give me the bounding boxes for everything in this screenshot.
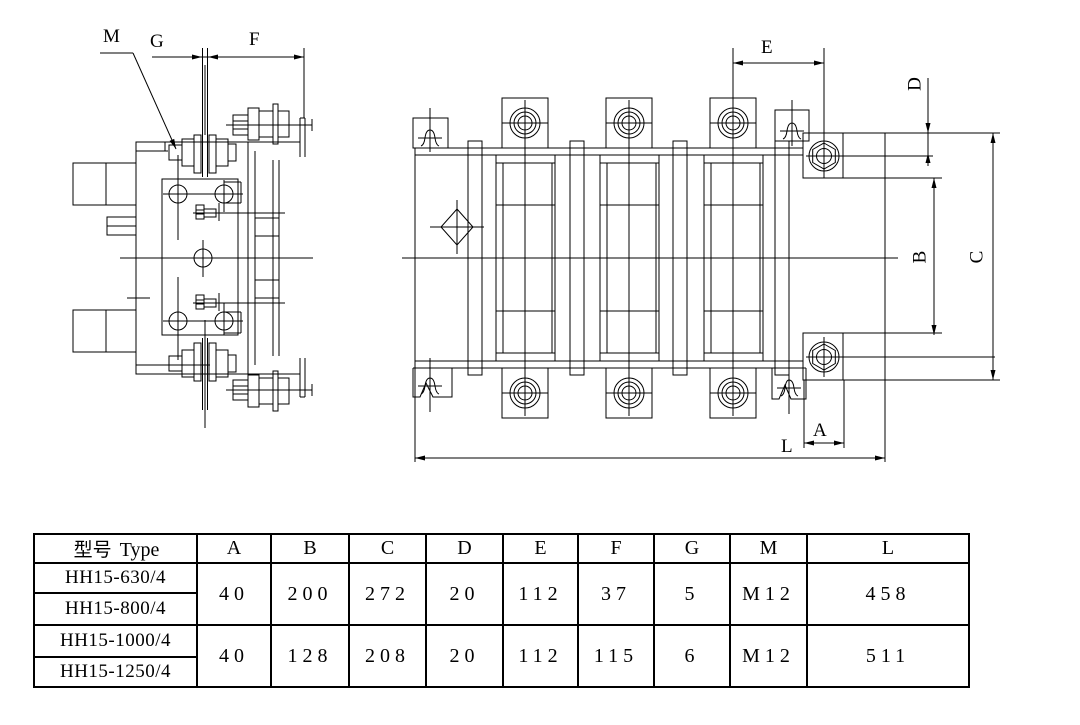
- value-cell: 112: [503, 563, 578, 625]
- value-cell: M12: [730, 625, 807, 687]
- top-terminal-block: [803, 48, 933, 178]
- upper-terminal-bolt-side: [226, 104, 312, 157]
- table-header-row: 型号Type A B C D E F G M L: [34, 534, 969, 563]
- value-cell: 272: [349, 563, 426, 625]
- dimension-l: [415, 368, 885, 462]
- leader-m: [100, 53, 176, 149]
- value-cell: 115: [578, 625, 654, 687]
- dim-label-g: G: [150, 32, 164, 51]
- value-cell: M12: [730, 563, 807, 625]
- value-cell: 5: [654, 563, 730, 625]
- dimension-g-f: [152, 48, 304, 118]
- table-row: HH15-630/4 40 200 272 20 112 37 5 M12 45…: [34, 563, 969, 593]
- col-header-f: F: [578, 534, 654, 563]
- col-header-a: A: [197, 534, 271, 563]
- value-cell: 200: [271, 563, 349, 625]
- type-header: 型号Type: [34, 534, 197, 563]
- pole-3: [704, 48, 763, 418]
- value-cell: 511: [807, 625, 969, 687]
- type-header-en: Type: [114, 539, 160, 561]
- small-screws: [193, 203, 285, 311]
- col-header-m: M: [730, 534, 807, 563]
- dim-label-c: C: [968, 251, 987, 264]
- value-cell: 40: [197, 563, 271, 625]
- col-header-b: B: [271, 534, 349, 563]
- dim-label-a: A: [813, 421, 827, 440]
- dimension-table: 型号Type A B C D E F G M L HH15-630/4 40 2…: [33, 533, 970, 688]
- value-cell: 128: [271, 625, 349, 687]
- model-cell: HH15-1250/4: [34, 657, 197, 687]
- diamond-mark: [430, 200, 484, 254]
- value-cell: 40: [197, 625, 271, 687]
- model-cell: HH15-800/4: [34, 593, 197, 625]
- col-header-d: D: [426, 534, 503, 563]
- model-cell: HH15-630/4: [34, 563, 197, 593]
- model-cell: HH15-1000/4: [34, 625, 197, 657]
- lower-terminal-bolt-side: [226, 358, 312, 411]
- mounting-brackets: [413, 100, 809, 414]
- col-header-g: G: [654, 534, 730, 563]
- table-row: HH15-1000/4 40 128 208 20 112 115 6 M12 …: [34, 625, 969, 657]
- type-header-zh: 型号: [72, 539, 114, 563]
- dimension-d: [926, 78, 931, 166]
- col-header-l: L: [807, 534, 969, 563]
- col-header-c: C: [349, 534, 426, 563]
- bottom-terminal-block: [803, 333, 995, 380]
- contact-blade: [203, 48, 208, 428]
- value-cell: 20: [426, 563, 503, 625]
- side-view: [73, 48, 313, 428]
- value-cell: 6: [654, 625, 730, 687]
- dim-label-f: F: [249, 30, 260, 49]
- value-cell: 37: [578, 563, 654, 625]
- dim-label-m: M: [103, 27, 120, 46]
- col-header-e: E: [503, 534, 578, 563]
- dimension-e: [733, 48, 824, 98]
- dim-label-l: L: [781, 437, 793, 456]
- value-cell: 458: [807, 563, 969, 625]
- value-cell: 20: [426, 625, 503, 687]
- value-cell: 112: [503, 625, 578, 687]
- side-body: [73, 142, 313, 374]
- dim-label-e: E: [761, 38, 773, 57]
- value-cell: 208: [349, 625, 426, 687]
- front-body: [402, 148, 898, 368]
- dim-label-d: D: [906, 77, 925, 91]
- drawing-sheet: M G F E D B C A L 型号Type A B C D E F G M…: [0, 0, 1080, 725]
- dim-label-b: B: [911, 251, 930, 264]
